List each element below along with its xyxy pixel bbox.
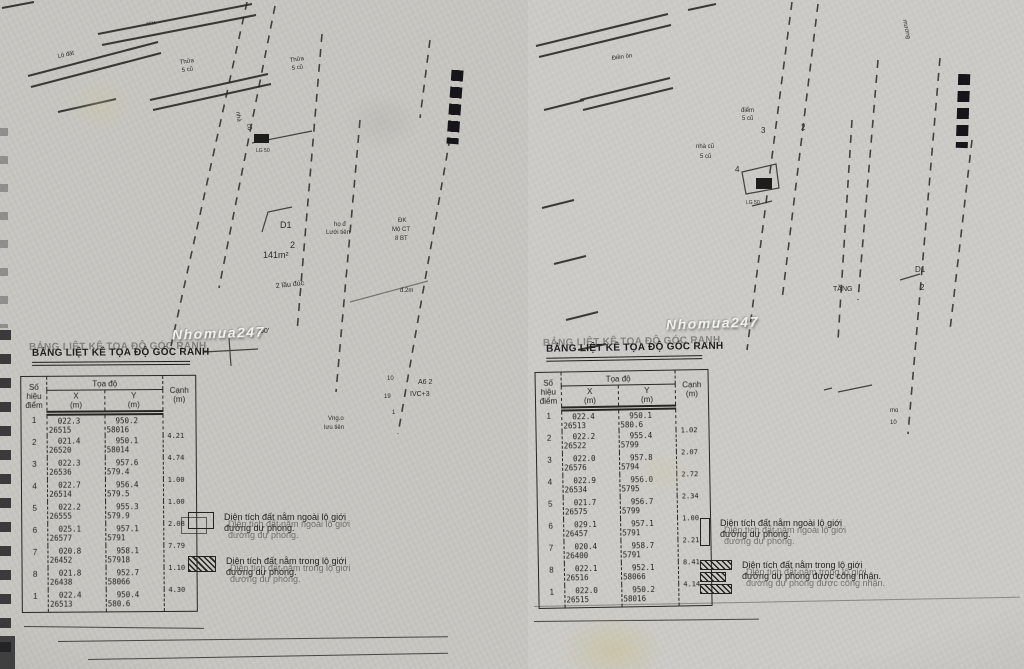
legend-label: đường dự phóng. — [720, 529, 842, 540]
coordinate-table-section-left: BẢNG LIỆT KÊ TỌA ĐỘ GÓC RANH Số hiệuđiểm… — [20, 347, 198, 613]
drawing-label: 2 — [801, 123, 806, 132]
y-coordinate: 950.4580.6 — [106, 589, 164, 612]
drawing-label: Điền ôn — [611, 53, 632, 62]
drawing-label: điểm — [741, 107, 754, 114]
drawing-label: TẦNG — [833, 283, 852, 293]
drawing-label: A6 2 — [418, 379, 433, 386]
boundary-dashed-lines — [747, 2, 972, 434]
drawing-label: 2 — [920, 283, 925, 292]
y-coordinate: 957.15791 — [621, 518, 678, 541]
x-coordinate: 022.126516 — [564, 563, 621, 586]
point-number: 8 — [538, 564, 564, 586]
drawing-label: cũ — [245, 123, 252, 130]
point-number: 3 — [21, 458, 47, 480]
drawing-label: 19 — [384, 394, 391, 400]
in-road-area-hatch-block — [254, 134, 269, 143]
legend-label: Diện tích đất nằm ngoài lộ giới — [720, 518, 842, 529]
y-coordinate: 950.258016 — [105, 413, 163, 436]
header-y: Y(m) — [105, 390, 163, 413]
drawing-label: LG 50 — [256, 148, 270, 154]
legend-item-outside-road: Diện tích đất nằm ngoài lộ giới đường dự… — [188, 512, 488, 534]
legend-label: đường dự phóng. — [224, 523, 346, 534]
table-header: Số hiệuđiểm Tọa độ Cạnh(m) X(m) Y(m) — [21, 375, 196, 413]
x-coordinate: 021.826438 — [48, 567, 106, 589]
drawing-label: D1 — [915, 265, 926, 274]
drawing-label: Thửa — [179, 57, 195, 66]
x-coordinate: 022.226522 — [562, 431, 619, 454]
drawing-label: 2 — [290, 240, 295, 250]
point-number: 7 — [22, 546, 48, 568]
drawing-label: Thửa — [289, 55, 305, 64]
drawing-label: ĐK — [398, 218, 406, 224]
plot-outline-lines — [742, 164, 920, 392]
point-number: 3 — [536, 454, 562, 476]
y-coordinate: 956.05795 — [620, 474, 677, 497]
y-coordinate: 955.45799 — [619, 430, 676, 453]
outline-swatch-icon — [700, 518, 710, 546]
point-number: 8 — [22, 568, 48, 590]
table-title: BẢNG LIỆT KÊ TỌA ĐỘ GÓC RANH — [546, 341, 702, 362]
drawing-label: 8 BT — [395, 236, 408, 242]
header-y: Y(m) — [618, 384, 675, 408]
binding-marks — [0, 128, 8, 328]
drawing-label: LG 50 — [746, 200, 760, 206]
drawing-label: họ đ — [334, 222, 346, 228]
y-coordinate: 950.158014 — [105, 435, 163, 457]
legend-right: Diện tích đất nằm ngoài lộ giới đường dự… — [700, 518, 1000, 594]
drawing-label: Mộ CT — [392, 227, 410, 233]
header-edge: Cạnh(m) — [675, 369, 709, 407]
legend-label: Diện tích đất nằm ngoài lộ giới — [224, 512, 346, 523]
drawing-label: 5 cũ — [742, 116, 753, 122]
header-x: X(m) — [47, 390, 105, 413]
legend-label: đường dự phóng được công nhận. — [742, 571, 881, 582]
drawing-label: nhà — [234, 111, 242, 123]
drawing-label: 1 — [392, 410, 396, 416]
header-point: Số hiệuđiểm — [535, 372, 562, 409]
x-coordinate: 022.026576 — [562, 453, 619, 476]
drawing-label: D1 — [280, 220, 292, 230]
in-road-area-hatch-block — [756, 178, 772, 189]
point-number: 1 — [22, 590, 48, 613]
header-x: X(m) — [561, 385, 618, 409]
boundary-dashed-lines — [171, 2, 450, 434]
drawing-label: đ.2m — [400, 288, 413, 294]
header-coord: Tọa độ — [47, 376, 163, 391]
table-row: 1 022.426513 950.4580.6 4.30 — [22, 589, 197, 613]
point-number: 5 — [537, 498, 563, 520]
watermark: Nhomua247 — [172, 323, 265, 342]
y-coordinate: 958.157918 — [106, 545, 164, 567]
point-number: 2 — [21, 436, 47, 458]
x-coordinate: 022.926534 — [563, 475, 620, 498]
watermark: Nhomua247 — [666, 313, 759, 332]
x-coordinate: 022.426513 — [48, 589, 106, 612]
x-coordinate: 025.126577 — [48, 523, 106, 545]
y-coordinate: 956.75799 — [620, 496, 677, 519]
y-coordinate: 952.158066 — [621, 562, 678, 585]
y-coordinate: 956.4579.5 — [105, 479, 163, 501]
point-number: 1 — [536, 409, 562, 432]
legend-item-inside-road: Diện tích đất nằm trong lộ giới đường dự… — [188, 556, 488, 578]
scanned-cadastral-document: ATMLộ đấtThửa5 cũThửa5 cũnhàcũLG 50D1214… — [0, 0, 1024, 669]
y-coordinate: 957.85794 — [619, 452, 676, 475]
drawing-label: Lộ đất — [57, 51, 75, 60]
header-point: Số hiệuđiểm — [21, 376, 48, 413]
y-coordinate: 955.3579.9 — [106, 501, 164, 523]
x-coordinate: 022.326515 — [47, 413, 105, 436]
table-title: BẢNG LIỆT KÊ TỌA ĐỘ GÓC RANH — [32, 347, 190, 366]
coordinate-table-section-right: BẢNG LIỆT KÊ TỌA ĐỘ GÓC RANH Số hiệuđiểm… — [534, 341, 713, 609]
point-number: 6 — [22, 524, 48, 546]
y-coordinate: 957.15791 — [106, 523, 164, 545]
drawing-label: 5 cũ — [181, 66, 193, 74]
point-number: 1 — [21, 413, 47, 436]
edge-length: 4.30 — [164, 589, 197, 612]
coordinate-table: Số hiệuđiểm Tọa độ Cạnh(m) X(m) Y(m) 1 0… — [20, 375, 198, 613]
point-number: 7 — [538, 542, 564, 564]
x-coordinate: 020.826452 — [48, 545, 106, 567]
x-coordinate: 021.726575 — [563, 497, 620, 520]
legend-label: đường dự phóng. — [226, 567, 346, 578]
hatched-swatch-icon — [188, 556, 216, 572]
drawing-label: 5 cũ — [291, 64, 303, 72]
drawing-label: Lưới tiên — [326, 230, 350, 236]
drawing-label: 3 — [761, 126, 766, 135]
point-number: 5 — [22, 502, 48, 524]
legend-item-inside-road: Diện tích đất nằm trong lộ giới đường dự… — [700, 560, 1000, 594]
x-coordinate: 022.726514 — [48, 479, 106, 501]
point-number: 4 — [21, 480, 47, 502]
drawing-label: lưu tiên — [324, 425, 344, 431]
drawing-label: mương — [901, 19, 911, 39]
drawing-label: nhà cũ — [696, 144, 714, 150]
drawing-label: 4 — [735, 165, 740, 174]
drawing-label: mo — [890, 408, 899, 414]
drawing-label: 10 — [890, 420, 897, 426]
road-double-lines — [2, 2, 271, 112]
x-coordinate: 022.426513 — [562, 408, 619, 431]
legend-item-outside-road: Diện tích đất nằm ngoài lộ giới đường dự… — [700, 518, 1000, 546]
point-number: 4 — [537, 476, 563, 498]
scan-tick-bar — [956, 74, 971, 148]
x-coordinate: 021.426520 — [47, 435, 105, 457]
legend-label: Diện tích đất nằm trong lộ giới — [742, 560, 881, 571]
drawing-label: Vng.o — [328, 416, 344, 422]
y-coordinate: 957.6579.4 — [105, 457, 163, 479]
drawing-label: IVC+3 — [410, 391, 430, 398]
header-edge: Cạnh(m) — [162, 375, 196, 412]
legend-label: Diện tích đất nằm trong lộ giới — [226, 556, 346, 567]
drawing-label: ATM — [145, 20, 156, 28]
point-number: 6 — [538, 520, 564, 542]
drawing-label: 5 cũ — [700, 154, 711, 160]
y-coordinate: 952.758066 — [106, 567, 164, 589]
x-coordinate: 020.426400 — [564, 541, 621, 564]
legend-left: Diện tích đất nằm ngoài lộ giới đường dự… — [188, 512, 488, 578]
coordinate-table: Số hiệuđiểm Tọa độ Cạnh(m) X(m) Y(m) 1 0… — [534, 369, 712, 609]
y-coordinate: 958.75791 — [621, 540, 678, 563]
x-coordinate: 029.126457 — [564, 519, 621, 542]
binding-marks — [0, 330, 11, 660]
y-coordinate: 950.1580.6 — [619, 407, 676, 430]
hatched-swatch-icon — [700, 560, 732, 594]
binding-corner-mark — [0, 636, 15, 669]
x-coordinate: 022.326536 — [48, 457, 106, 479]
drawing-label: 141m² — [263, 250, 289, 260]
outline-swatch-icon — [188, 512, 214, 529]
x-coordinate: 022.226555 — [48, 501, 106, 523]
point-number: 2 — [536, 432, 562, 454]
table-header: Số hiệuđiểm Tọa độ Cạnh(m) X(m) Y(m) — [535, 369, 709, 409]
drawing-label: 10 — [387, 376, 394, 382]
